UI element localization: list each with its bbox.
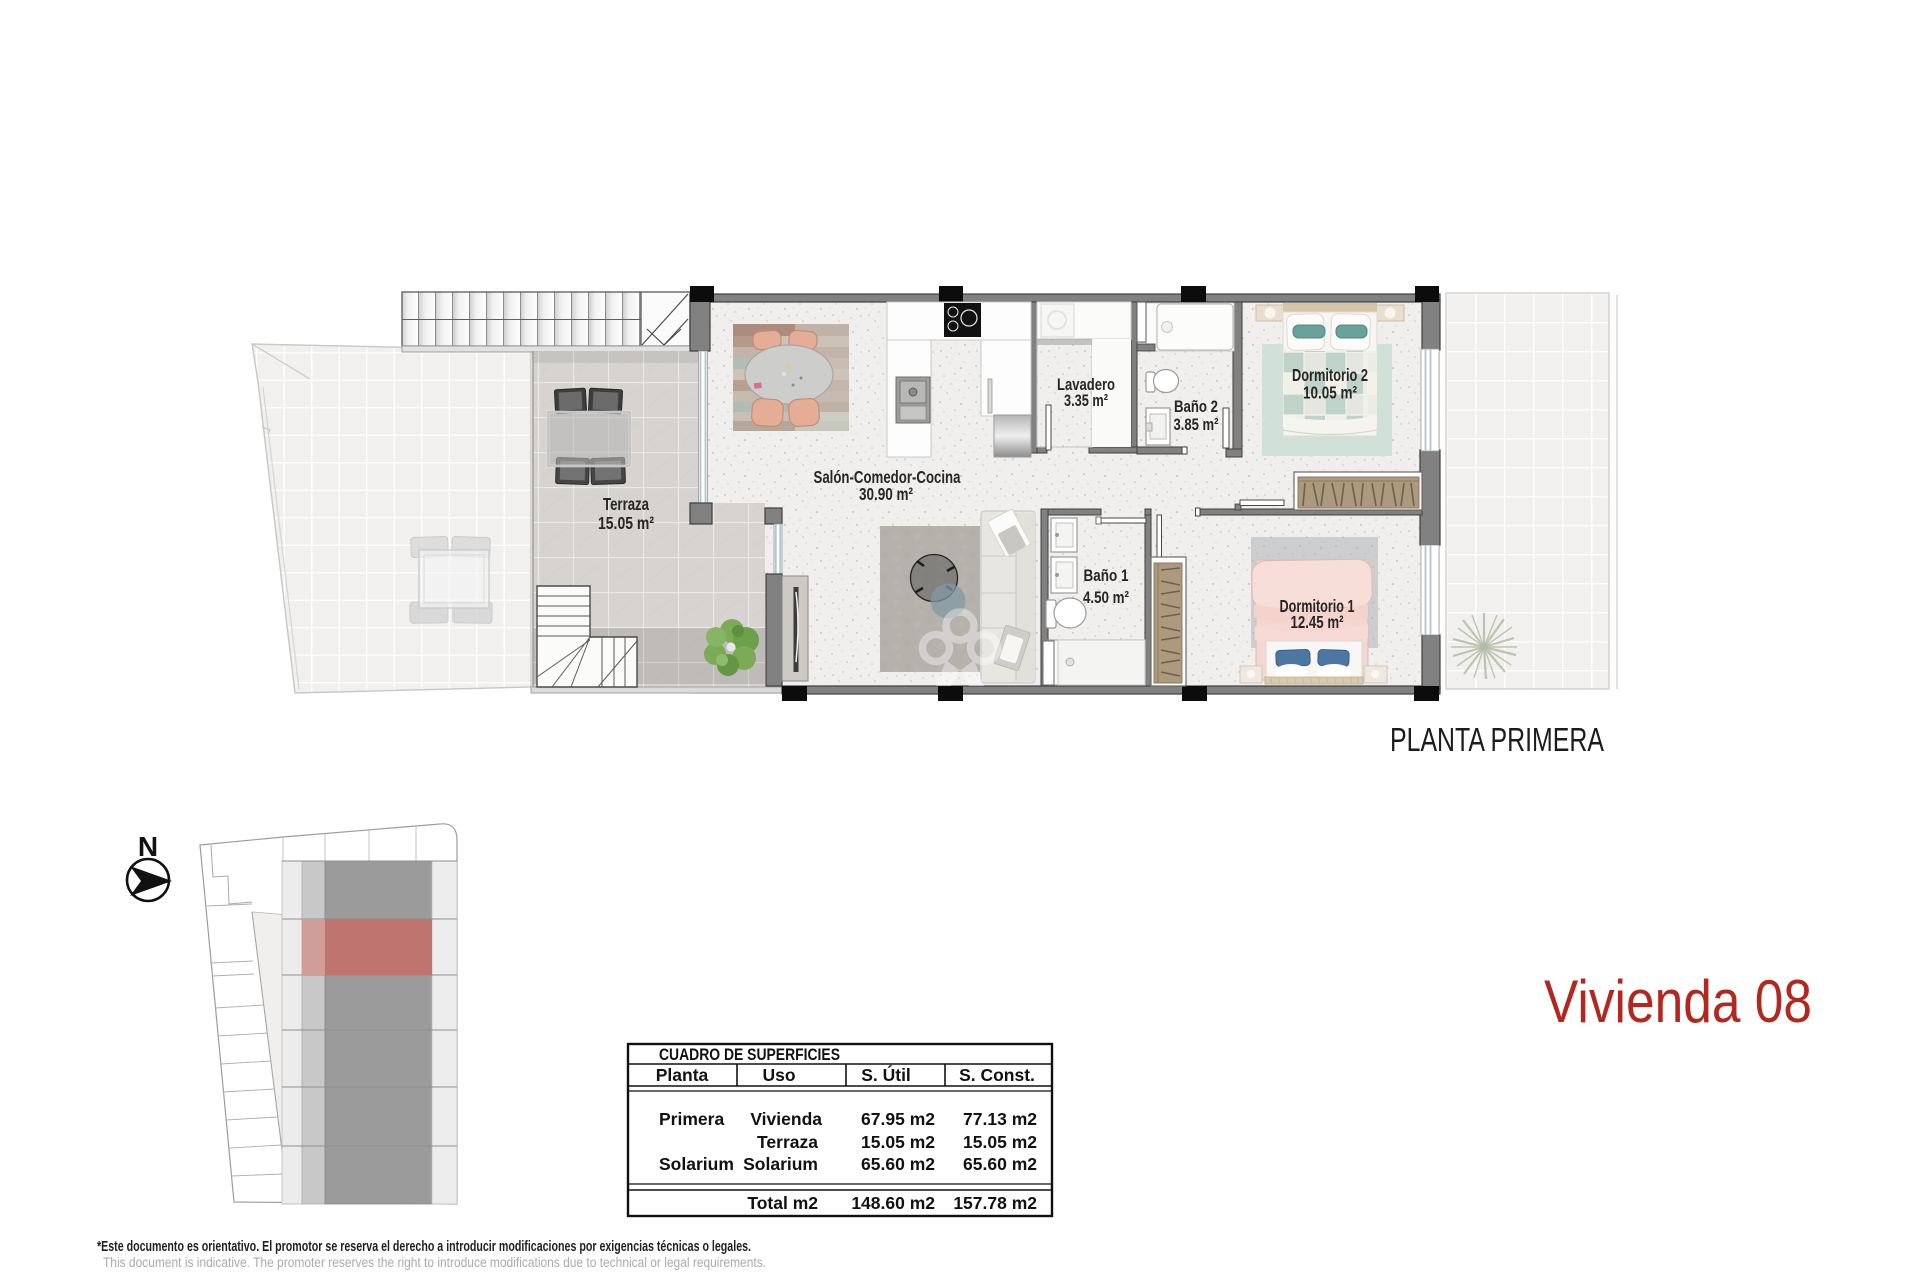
svg-text:Solarium: Solarium	[659, 1154, 734, 1174]
svg-text:30.90 m²: 30.90 m²	[859, 484, 913, 504]
svg-text:S. Útil: S. Útil	[861, 1064, 911, 1085]
svg-text:65.60 m2: 65.60 m2	[861, 1154, 935, 1174]
svg-text:Solarium: Solarium	[743, 1154, 818, 1174]
svg-text:Planta: Planta	[656, 1065, 709, 1085]
svg-text:148.60 m2: 148.60 m2	[851, 1193, 935, 1213]
svg-text:67.95 m2: 67.95 m2	[861, 1109, 935, 1129]
svg-text:10.05 m²: 10.05 m²	[1303, 383, 1357, 403]
svg-text:Vivienda: Vivienda	[750, 1109, 822, 1129]
svg-text:4.50 m²: 4.50 m²	[1083, 589, 1129, 607]
svg-text:3.35 m²: 3.35 m²	[1064, 392, 1108, 410]
svg-text:S. Const.: S. Const.	[959, 1065, 1035, 1085]
svg-text:Terraza: Terraza	[757, 1132, 818, 1152]
svg-text:15.05 m²: 15.05 m²	[598, 513, 654, 533]
svg-text:PLANTA PRIMERA: PLANTA PRIMERA	[1390, 721, 1604, 758]
svg-text:Primera: Primera	[659, 1109, 724, 1129]
svg-text:This document is indicative. T: This document is indicative. The promote…	[103, 1255, 766, 1270]
svg-text:Baño 1: Baño 1	[1084, 567, 1129, 585]
svg-text:77.13 m2: 77.13 m2	[963, 1109, 1037, 1129]
svg-text:157.78 m2: 157.78 m2	[953, 1193, 1037, 1213]
svg-text:Baño 2: Baño 2	[1174, 398, 1218, 416]
svg-text:15.05 m2: 15.05 m2	[861, 1132, 935, 1152]
svg-text:Terraza: Terraza	[603, 494, 649, 514]
svg-text:CUADRO DE SUPERFICIES: CUADRO DE SUPERFICIES	[659, 1046, 840, 1064]
svg-text:15.05 m2: 15.05 m2	[963, 1132, 1037, 1152]
svg-text:65.60 m2: 65.60 m2	[963, 1154, 1037, 1174]
svg-text:N: N	[138, 831, 158, 862]
svg-text:*Este documento es orientativo: *Este documento es orientativo. El promo…	[97, 1239, 751, 1255]
svg-text:3.85 m²: 3.85 m²	[1174, 416, 1219, 434]
svg-text:Vivienda 08: Vivienda 08	[1544, 968, 1812, 1035]
svg-text:12.45 m²: 12.45 m²	[1291, 612, 1344, 632]
svg-text:Uso: Uso	[762, 1065, 795, 1085]
svg-text:Total m2: Total m2	[747, 1193, 818, 1213]
